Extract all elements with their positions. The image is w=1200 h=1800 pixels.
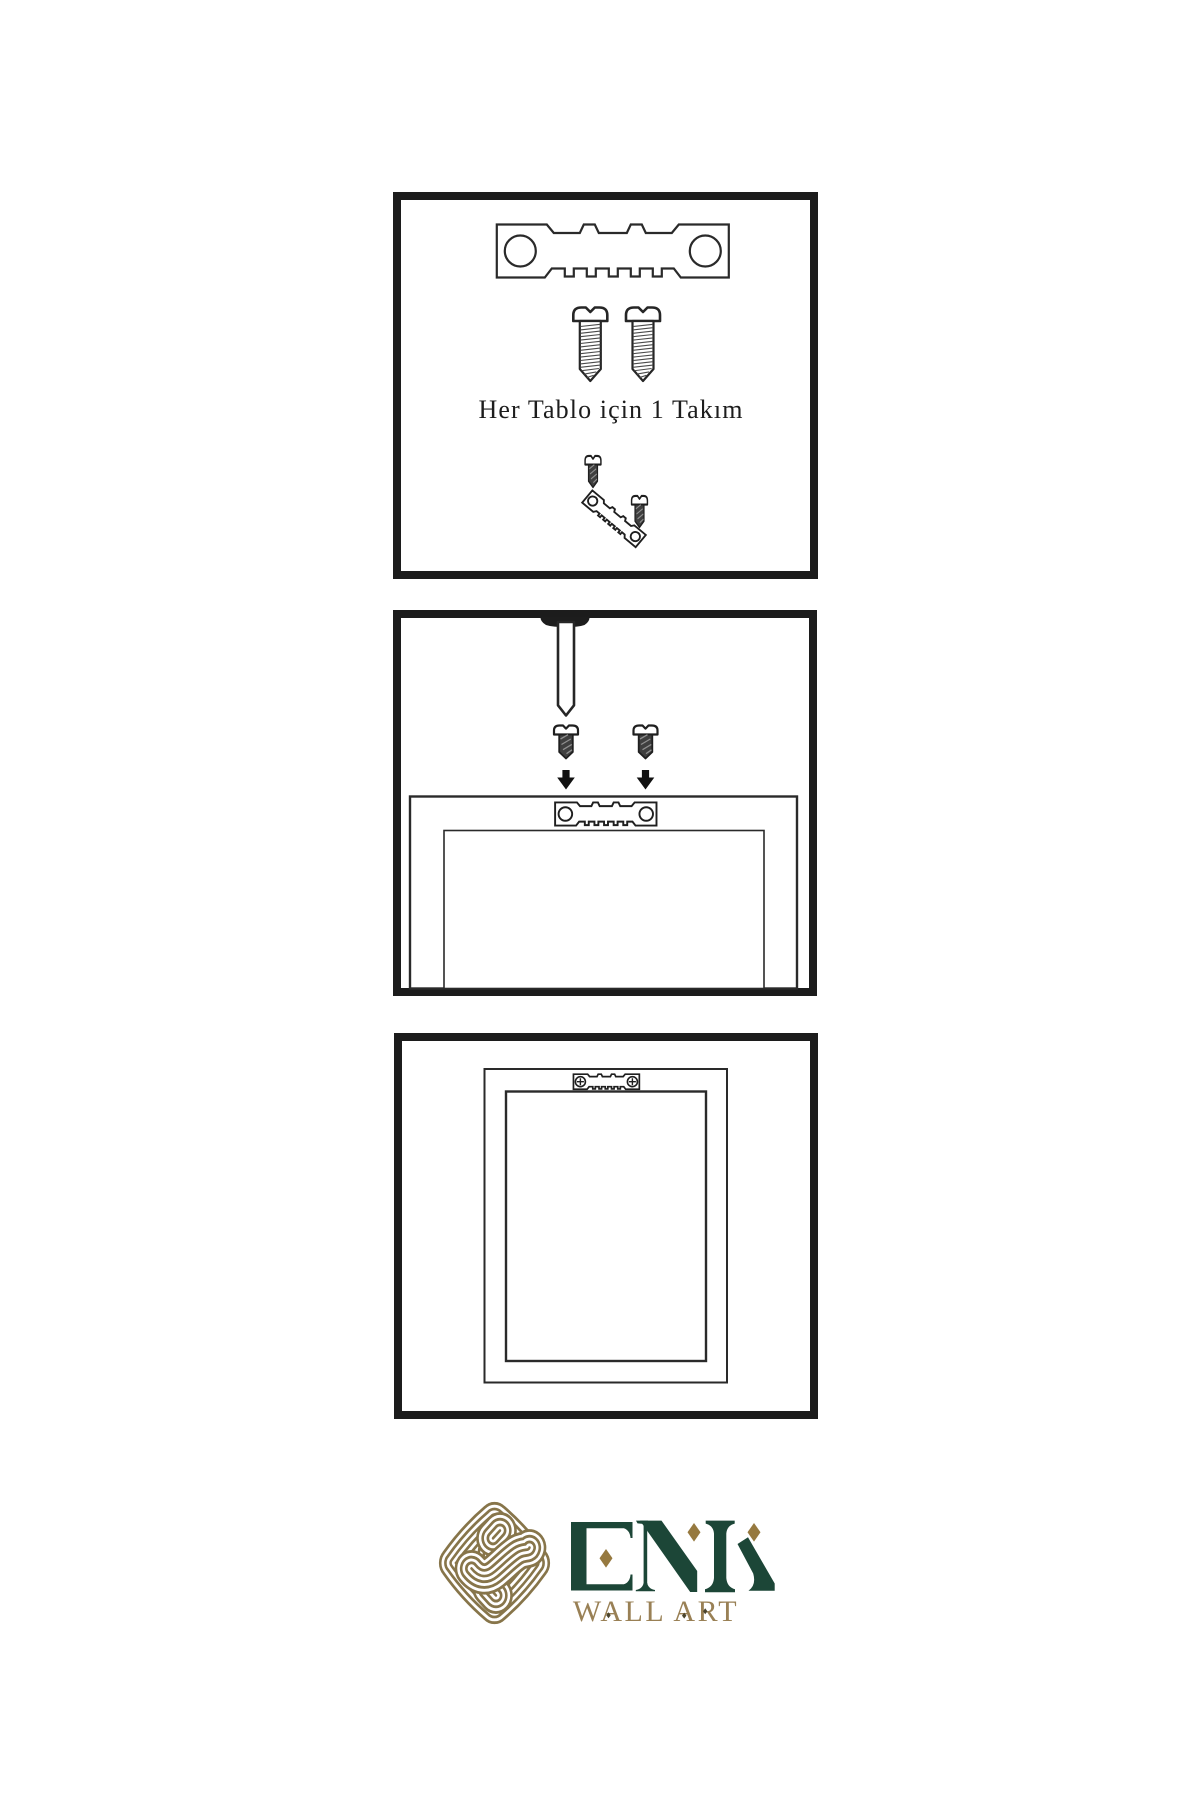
svg-text:Her Tablo için 1 Takım: Her Tablo için 1 Takım bbox=[478, 395, 743, 424]
svg-text:WALL ART: WALL ART bbox=[573, 1595, 739, 1628]
